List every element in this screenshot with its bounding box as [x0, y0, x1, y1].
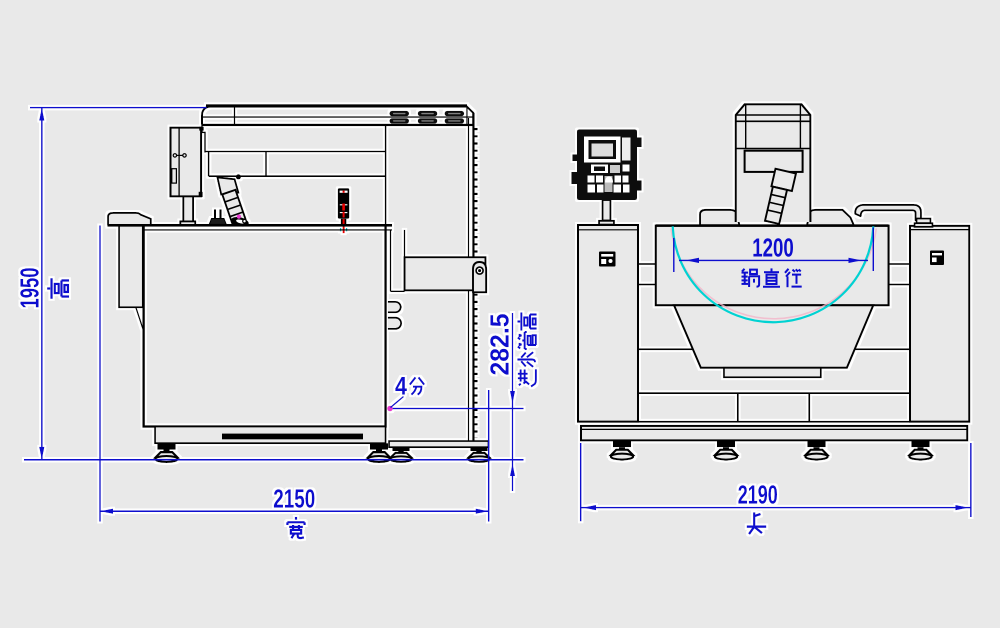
- svg-text:1200: 1200: [752, 232, 794, 262]
- svg-text:2190: 2190: [738, 479, 778, 509]
- svg-text:2150: 2150: [273, 484, 315, 514]
- svg-text:282.5: 282.5: [485, 314, 515, 376]
- svg-text:4: 4: [395, 373, 407, 401]
- svg-text:1950: 1950: [15, 268, 45, 309]
